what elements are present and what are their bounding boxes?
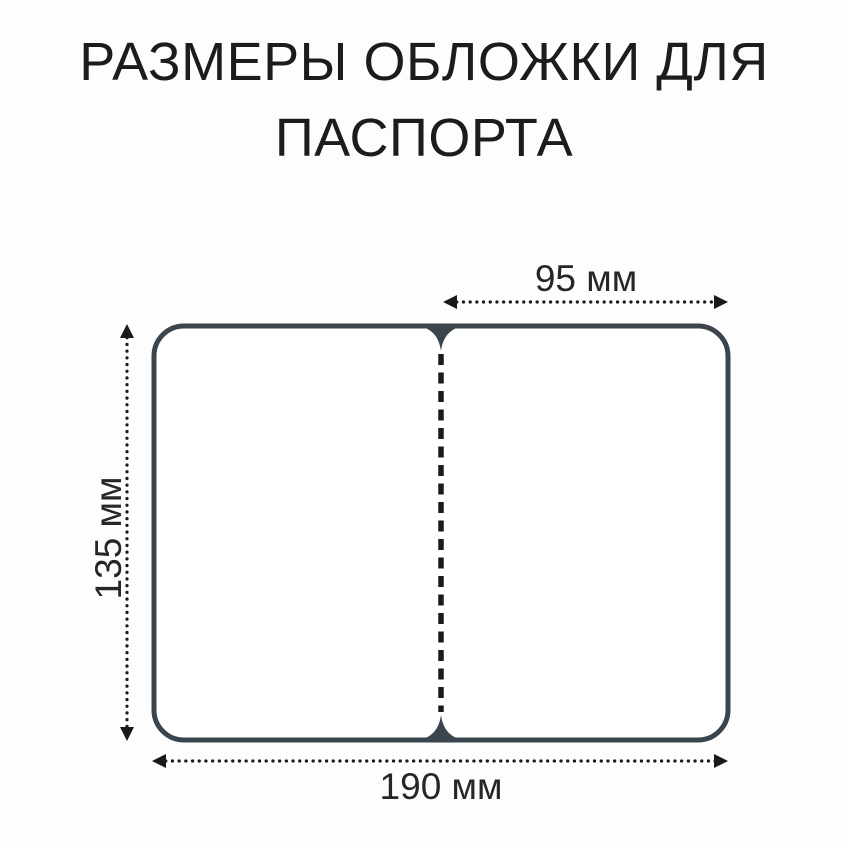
dimension-height: 135 мм (88, 324, 134, 741)
arrowhead-top-icon (120, 324, 134, 338)
arrowhead-right-icon (714, 754, 728, 768)
dimension-label-95mm: 95 мм (535, 258, 637, 299)
arrowhead-left-icon (152, 754, 166, 768)
passport-cover-size-diagram: РАЗМЕРЫ ОБЛОЖКИ ДЛЯ ПАСПОРТА 95 мм 135 м… (0, 0, 848, 848)
arrowhead-left-icon (443, 295, 457, 309)
dimension-label-190mm: 190 мм (380, 766, 503, 807)
dimension-diagram: 95 мм 135 мм 190 мм (0, 0, 848, 848)
dimension-width-full: 190 мм (152, 754, 728, 807)
dimension-label-135mm: 135 мм (88, 477, 129, 600)
arrowhead-right-icon (714, 295, 728, 309)
arrowhead-bottom-icon (120, 727, 134, 741)
dimension-width-half: 95 мм (443, 258, 728, 309)
